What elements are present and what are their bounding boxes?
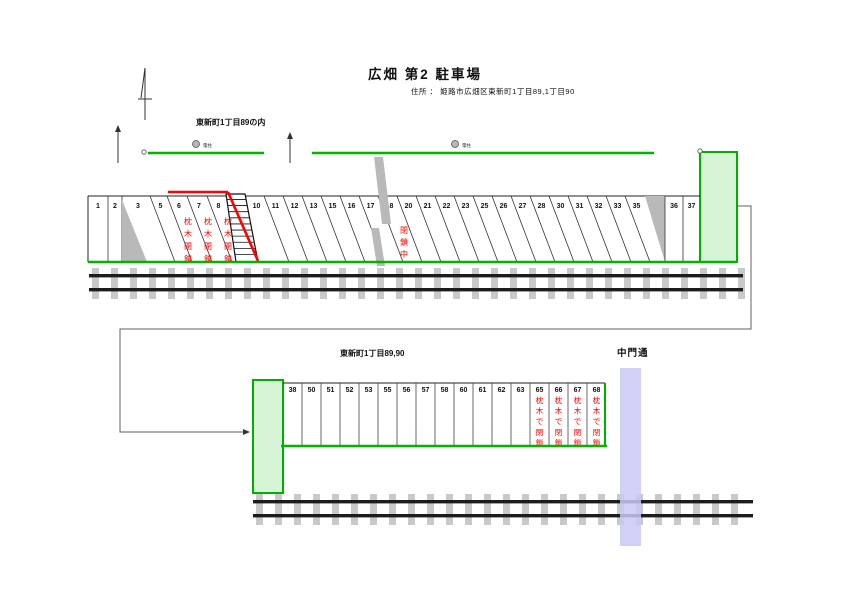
space-number: 7 xyxy=(197,203,201,210)
lower-track-sleeper xyxy=(731,494,738,525)
lower-track-sleeper xyxy=(598,494,605,525)
green-area-lower xyxy=(253,380,283,493)
space-number: 27 xyxy=(519,203,527,210)
space-number: 26 xyxy=(500,203,508,210)
space-number: 55 xyxy=(384,387,392,394)
space-number: 22 xyxy=(443,203,451,210)
upper-track-sleeper xyxy=(168,268,175,299)
space-number: 65 xyxy=(536,387,544,394)
lower-track-sleeper xyxy=(275,494,282,525)
walkway-bar xyxy=(371,228,385,266)
upper-track-sleeper xyxy=(605,268,612,299)
space-number: 31 xyxy=(576,203,584,210)
space-number: 58 xyxy=(441,387,449,394)
upper-track-sleeper xyxy=(567,268,574,299)
upper-track-sleeper xyxy=(510,268,517,299)
upper-track-sleeper xyxy=(643,268,650,299)
road-end-marker xyxy=(698,149,702,153)
upper-track-sleeper xyxy=(263,268,270,299)
street-band xyxy=(620,368,641,546)
space-number: 53 xyxy=(365,387,373,394)
lower-track-sleeper xyxy=(332,494,339,525)
upper-track-sleeper xyxy=(662,268,669,299)
space-number: 21 xyxy=(424,203,432,210)
upper-track-sleeper xyxy=(377,268,384,299)
upper-street-label: 東新町1丁目89の内 xyxy=(196,117,265,128)
upper-track-sleeper xyxy=(339,268,346,299)
sleeper-closed-label: 枕木閉鎖 xyxy=(204,216,212,264)
upper-track-sleeper xyxy=(719,268,726,299)
space-number: 25 xyxy=(481,203,489,210)
space-number: 5 xyxy=(159,203,163,210)
space-number: 32 xyxy=(595,203,603,210)
lower-track-sleeper xyxy=(446,494,453,525)
lower-track-sleeper xyxy=(389,494,396,525)
upper-track-sleeper xyxy=(472,268,479,299)
space-number: 10 xyxy=(253,203,261,210)
space-number: 1 xyxy=(96,203,100,210)
utility-pole-label: 電柱 xyxy=(462,142,471,149)
space-number: 8 xyxy=(217,203,221,210)
green-area-upper xyxy=(700,152,737,262)
upper-track-sleeper xyxy=(244,268,251,299)
space-number: 30 xyxy=(557,203,565,210)
north-arrow-icon xyxy=(141,68,145,98)
lower-track-sleeper xyxy=(655,494,662,525)
connector-line xyxy=(120,206,751,432)
lower-track-sleeper xyxy=(541,494,548,525)
upper-track-sleeper xyxy=(111,268,118,299)
cross-street-label: 中門通 xyxy=(617,345,649,359)
lower-track-sleeper xyxy=(465,494,472,525)
space-number: 38 xyxy=(289,387,297,394)
upper-track-sleeper xyxy=(548,268,555,299)
utility-pole-icon xyxy=(452,141,459,148)
space-divider xyxy=(150,196,175,262)
lower-track-sleeper xyxy=(427,494,434,525)
upper-track-sleeper xyxy=(415,268,422,299)
upper-track-sleeper xyxy=(491,268,498,299)
upper-track-sleeper xyxy=(358,268,365,299)
upper-track-rail xyxy=(89,288,743,291)
space-number: 50 xyxy=(308,387,316,394)
space-number: 23 xyxy=(462,203,470,210)
space-number: 37 xyxy=(688,203,696,210)
space-number: 6 xyxy=(177,203,181,210)
lower-track-rail xyxy=(253,500,753,503)
lower-track-sleeper xyxy=(503,494,510,525)
space-number: 35 xyxy=(633,203,641,210)
upper-track-sleeper xyxy=(529,268,536,299)
upper-track-sleeper xyxy=(681,268,688,299)
gray-wedge xyxy=(122,200,147,262)
upper-track-sleeper xyxy=(434,268,441,299)
upper-track-sleeper xyxy=(130,268,137,299)
space-number: 67 xyxy=(574,387,582,394)
lower-track-sleeper xyxy=(370,494,377,525)
entrance-arrow-head xyxy=(287,132,293,139)
lower-track-sleeper xyxy=(484,494,491,525)
utility-pole-label: 電柱 xyxy=(203,142,212,149)
space-number: 3 xyxy=(136,203,140,210)
space-number: 13 xyxy=(310,203,318,210)
page-title: 広畑 第2 駐車場 xyxy=(368,63,482,83)
space-number: 16 xyxy=(348,203,356,210)
road-end-marker xyxy=(142,150,146,154)
space-number: 15 xyxy=(329,203,337,210)
space-number: 28 xyxy=(538,203,546,210)
upper-track-sleeper xyxy=(453,268,460,299)
space-number: 2 xyxy=(113,203,117,210)
upper-track-sleeper xyxy=(624,268,631,299)
upper-track-sleeper xyxy=(149,268,156,299)
lower-track-sleeper xyxy=(408,494,415,525)
sleeper-closed-label: 枕木で閉鎖 xyxy=(593,395,601,447)
upper-track-sleeper xyxy=(396,268,403,299)
connector-arrow-head xyxy=(243,429,250,435)
lower-track-rail xyxy=(253,514,753,517)
lower-track-sleeper xyxy=(256,494,263,525)
upper-track-sleeper xyxy=(320,268,327,299)
space-number: 20 xyxy=(405,203,413,210)
lower-track-sleeper xyxy=(522,494,529,525)
lower-track-sleeper xyxy=(579,494,586,525)
upper-track-sleeper xyxy=(282,268,289,299)
lower-track-sleeper xyxy=(313,494,320,525)
space-number: 68 xyxy=(593,387,601,394)
space-number: 63 xyxy=(517,387,525,394)
space-number: 62 xyxy=(498,387,506,394)
sleeper-closed-label: 枕木で閉鎖 xyxy=(555,395,563,447)
space-number: 61 xyxy=(479,387,487,394)
lower-track-sleeper xyxy=(294,494,301,525)
space-number: 60 xyxy=(460,387,468,394)
space-number: 33 xyxy=(614,203,622,210)
upper-track-rail xyxy=(89,274,743,277)
sleeper-closed-label: 枕木閉鎖 xyxy=(224,216,232,264)
utility-pole-icon xyxy=(193,141,200,148)
upper-track-sleeper xyxy=(738,268,745,299)
upper-track-sleeper xyxy=(700,268,707,299)
upper-track-sleeper xyxy=(206,268,213,299)
entrance-arrow-head xyxy=(115,125,121,132)
sleeper-closed-label: 枕木で閉鎖 xyxy=(574,395,582,447)
address-subtitle: 住所 ： 姫路市広畑区東新町1丁目89,1丁目90 xyxy=(411,86,575,97)
space-number: 51 xyxy=(327,387,335,394)
upper-track-sleeper xyxy=(187,268,194,299)
lower-track-sleeper xyxy=(674,494,681,525)
walkway-bar xyxy=(374,157,391,224)
upper-track-sleeper xyxy=(586,268,593,299)
lower-track-sleeper xyxy=(693,494,700,525)
space-number: 56 xyxy=(403,387,411,394)
sleeper-closed-label: 枕木閉鎖 xyxy=(184,216,192,264)
upper-track-sleeper xyxy=(225,268,232,299)
space-number: 66 xyxy=(555,387,563,394)
space-number: 11 xyxy=(272,203,280,210)
upper-track-sleeper xyxy=(301,268,308,299)
space-number: 17 xyxy=(367,203,375,210)
parking-plan-page: 電柱電柱123567810111213151617182021222325262… xyxy=(0,0,842,595)
gray-wedge xyxy=(645,196,665,262)
lower-street-label: 東新町1丁目89,90 xyxy=(340,348,404,359)
upper-track-sleeper xyxy=(92,268,99,299)
space-number: 36 xyxy=(670,203,678,210)
lower-track-sleeper xyxy=(351,494,358,525)
sleeper-closed-label: 枕木で閉鎖 xyxy=(536,395,544,447)
lower-track-sleeper xyxy=(560,494,567,525)
space-number: 12 xyxy=(291,203,299,210)
closed-now-label: 閉鎖中 xyxy=(400,226,408,259)
space-number: 57 xyxy=(422,387,430,394)
space-number: 52 xyxy=(346,387,354,394)
lower-track-sleeper xyxy=(712,494,719,525)
